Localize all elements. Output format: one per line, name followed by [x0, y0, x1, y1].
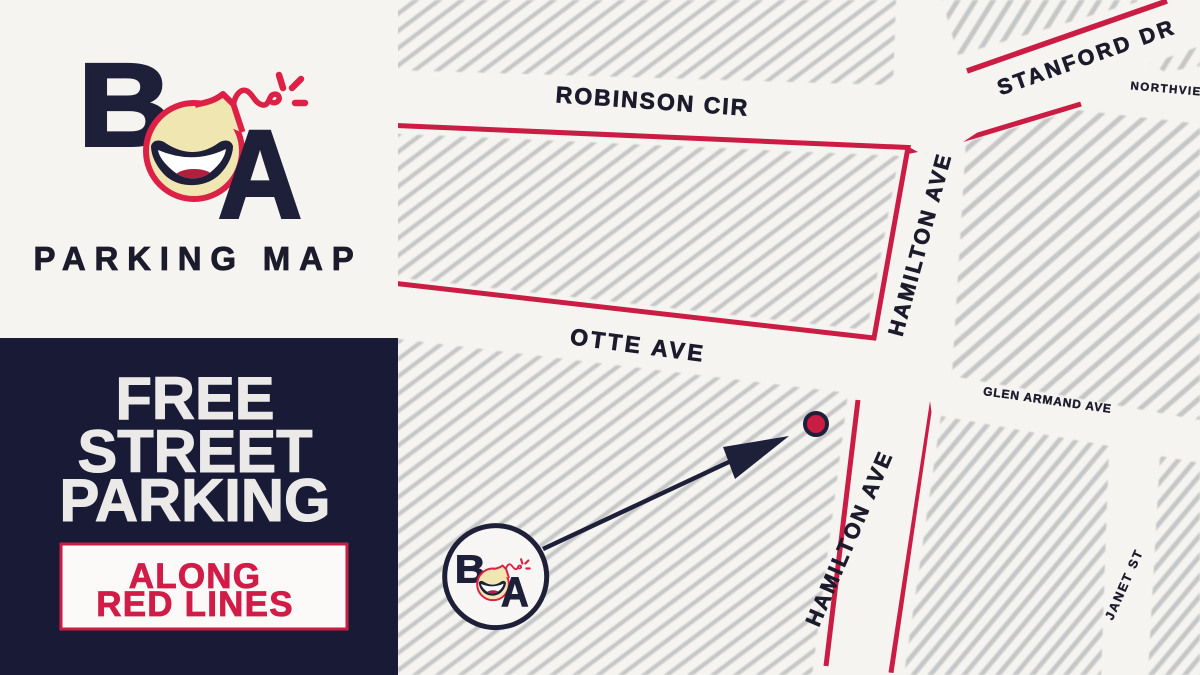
svg-text:PARKING MAP: PARKING MAP — [33, 240, 362, 277]
svg-text:NORTHVIEW: NORTHVIEW — [1130, 80, 1200, 99]
svg-text:OTTE AVE: OTTE AVE — [569, 323, 708, 367]
svg-text:JANET ST: JANET ST — [1102, 547, 1146, 623]
svg-text:PARKING: PARKING — [60, 467, 331, 534]
svg-text:RED LINES: RED LINES — [96, 585, 294, 624]
svg-text:ROBINSON CIR: ROBINSON CIR — [555, 81, 750, 120]
